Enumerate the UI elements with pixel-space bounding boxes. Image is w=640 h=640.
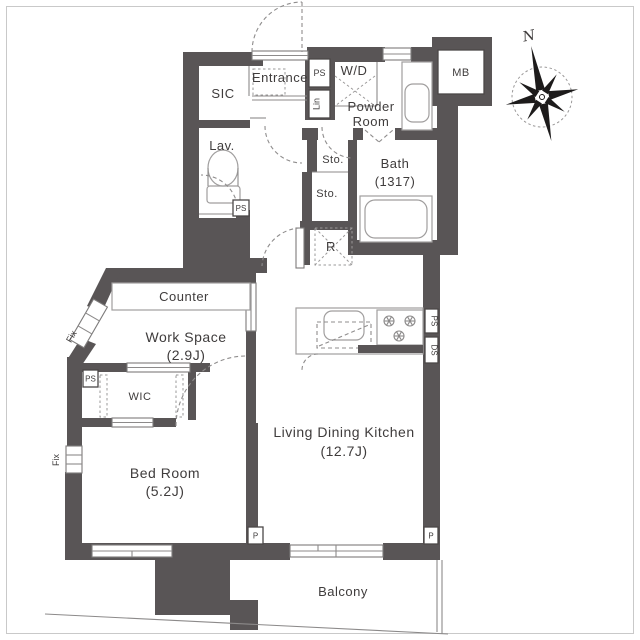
room-label-counter: Counter — [159, 289, 209, 304]
compass-north-label: N — [520, 27, 537, 46]
box-label-mb: MB — [452, 67, 470, 79]
box-label-ps-wic: PS — [85, 375, 96, 384]
fix-window-upper — [70, 299, 107, 348]
room-label-balcony: Balcony — [318, 584, 368, 599]
room-label-sto-upper: Sto. — [322, 154, 344, 166]
room-label-entrance: Entrance — [252, 70, 308, 85]
entrance-door-arc — [252, 2, 302, 52]
box-label-p-left: P — [253, 532, 258, 541]
room-label-powder-2: Room — [353, 114, 390, 129]
floor-plan-page: N SIC Entrance PS Lin W/D Powder Room MB… — [0, 0, 640, 640]
box-label-r: R — [326, 239, 336, 254]
box-label-ps-entry: PS — [313, 68, 325, 78]
room-label-ldk-size: (12.7J) — [320, 443, 367, 459]
room-label-powder-1: Powder — [347, 99, 394, 114]
box-label-ds-kitchen: DS — [430, 344, 439, 355]
room-label-workspace-size: (2.9J) — [167, 347, 206, 363]
kitchen-sink-icon — [324, 311, 364, 340]
fix-window-lower — [66, 446, 82, 473]
box-label-ps-lav: PS — [236, 204, 247, 213]
hall-ldk-door-arc — [262, 228, 300, 266]
room-label-wic: WIC — [129, 391, 152, 403]
bath-folding-door — [365, 130, 393, 142]
room-label-bath-size: (1317) — [375, 174, 416, 189]
kitchen-counter — [296, 308, 423, 354]
room-label-ldk: Living Dining Kitchen — [273, 424, 414, 440]
hall-door-leaf — [296, 228, 304, 268]
room-label-bedroom-size: (5.2J) — [146, 483, 185, 499]
room-label-wd: W/D — [341, 63, 368, 78]
label-fix-lower: Fix — [51, 454, 61, 466]
room-label-bedroom: Bed Room — [130, 465, 200, 481]
box-label-p-right: P — [428, 532, 433, 541]
room-label-workspace: Work Space — [146, 329, 227, 345]
room-label-lav: Lav. — [209, 138, 235, 153]
toilet-icon — [207, 150, 240, 203]
vanity-sink-icon — [402, 62, 432, 130]
box-label-ps-kitchen: PS — [430, 316, 439, 327]
kitchen-entry-arc — [302, 354, 318, 370]
floor-plan-drawing: N SIC Entrance PS Lin W/D Powder Room MB… — [0, 0, 640, 640]
room-label-bath: Bath — [381, 156, 410, 171]
bathtub-icon — [360, 196, 432, 242]
room-label-sto-lower: Sto. — [316, 188, 338, 200]
powder-door-arc — [265, 126, 302, 163]
compass-rose-icon: N — [490, 21, 589, 149]
room-label-sic: SIC — [211, 86, 234, 101]
box-label-lin: Lin — [312, 98, 322, 110]
